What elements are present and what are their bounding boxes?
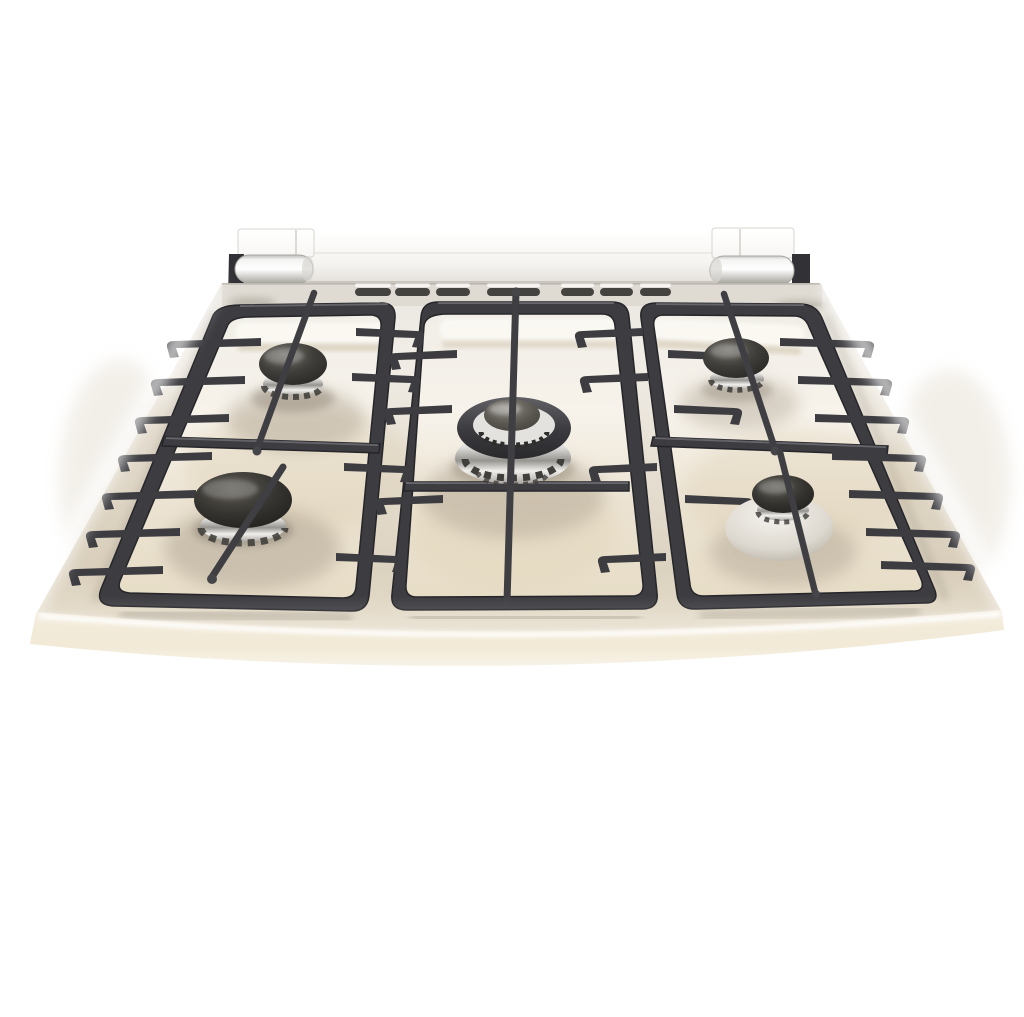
vent-highlight xyxy=(436,284,470,288)
right-hinge-cylinder xyxy=(710,256,794,285)
vent-slot xyxy=(600,288,633,296)
lid-edge xyxy=(250,234,770,282)
vent-slot xyxy=(395,288,430,296)
finger-bar-tip xyxy=(207,574,217,584)
lid-bar xyxy=(250,234,770,282)
finger-bar-tip xyxy=(253,447,262,456)
vent-slot xyxy=(640,288,671,296)
left-hinge-block xyxy=(238,229,314,257)
burner-right-rear xyxy=(703,338,769,390)
bottom-fade xyxy=(0,596,1024,756)
burner-cap xyxy=(703,338,769,378)
left-hinge-cylinder xyxy=(235,255,313,283)
vent-slot xyxy=(355,288,391,296)
burner-cap-highlight xyxy=(264,348,304,364)
right-hinge-cylinder-end xyxy=(710,257,722,283)
cooktop-photo xyxy=(0,0,1024,1017)
vent-highlight xyxy=(355,284,391,288)
vent-highlight xyxy=(561,284,594,288)
vent-highlight xyxy=(395,284,430,288)
burner-cap xyxy=(752,475,814,513)
photo-stage xyxy=(0,0,1024,1017)
lid-seam xyxy=(250,252,770,254)
left-hinge-cylinder-end xyxy=(302,256,314,282)
vent-slot xyxy=(436,288,470,296)
right-hinge-block xyxy=(712,228,794,258)
finger-bar-tip xyxy=(512,288,521,297)
center-tray-streak-shadow xyxy=(442,341,618,348)
vent-highlight xyxy=(640,284,671,288)
vent-slot xyxy=(561,288,594,296)
burner-cap-highlight xyxy=(202,479,258,499)
vent-highlight xyxy=(600,284,633,288)
vent-highlight xyxy=(487,284,540,288)
